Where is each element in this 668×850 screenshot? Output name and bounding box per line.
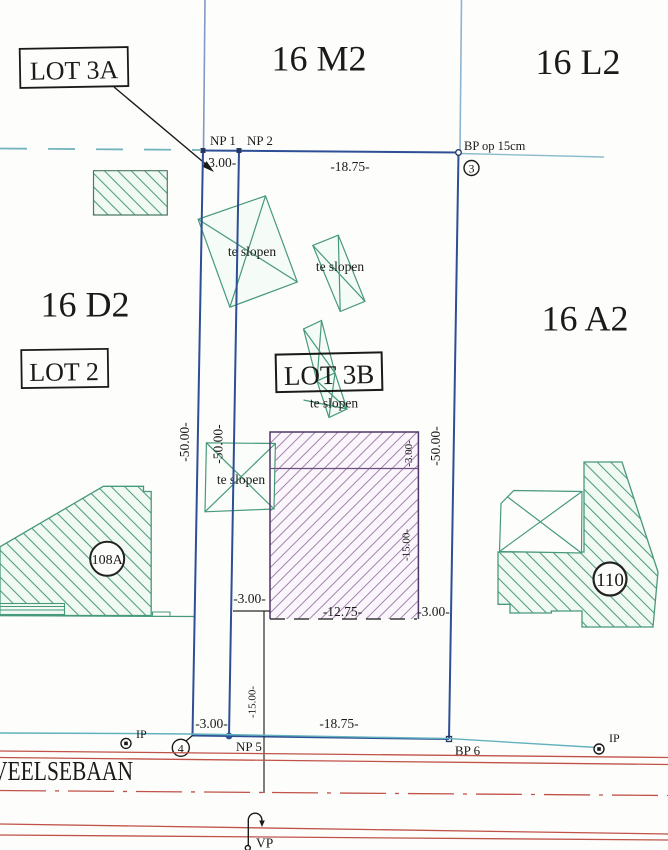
svg-text:-3.00-: -3.00- (233, 591, 266, 606)
svg-text:-3.00-: -3.00- (403, 440, 415, 467)
svg-text:VP: VP (256, 836, 273, 850)
svg-text:te slopen: te slopen (310, 396, 359, 411)
svg-text:-12.75-: -12.75- (323, 604, 363, 619)
svg-text:-18.75-: -18.75- (330, 159, 370, 174)
svg-text:te slopen: te slopen (217, 472, 266, 487)
svg-text:NP 2: NP 2 (247, 133, 273, 148)
svg-text:te slopen: te slopen (228, 244, 277, 259)
svg-text:-15.00-: -15.00- (247, 686, 259, 718)
svg-text:108A: 108A (92, 553, 124, 568)
svg-text:IP: IP (609, 731, 620, 745)
svg-text:-18.75-: -18.75- (319, 716, 359, 731)
svg-text:16 M2: 16 M2 (271, 39, 366, 79)
svg-text:BP op 15cm: BP op 15cm (464, 139, 526, 153)
svg-text:-3.00-: -3.00- (417, 604, 450, 619)
svg-text:110: 110 (596, 570, 624, 591)
svg-text:-3.00-: -3.00- (204, 155, 237, 170)
svg-text:-50.00-: -50.00- (211, 424, 226, 464)
svg-text:te slopen: te slopen (316, 259, 365, 274)
svg-text:16 L2: 16 L2 (536, 42, 621, 82)
svg-text:16 A2: 16 A2 (541, 299, 628, 339)
svg-text:-15.00-: -15.00- (401, 529, 413, 561)
svg-text:3: 3 (469, 162, 475, 176)
svg-text:NP 1: NP 1 (210, 133, 236, 148)
svg-text:NP 5: NP 5 (236, 739, 262, 754)
svg-text:-50.00-: -50.00- (428, 426, 443, 466)
svg-text:VEELSEBAAN: VEELSEBAAN (0, 756, 133, 786)
svg-text:16 D2: 16 D2 (41, 285, 130, 325)
svg-text:LOT 2: LOT 2 (29, 357, 99, 387)
svg-text:LOT 3A: LOT 3A (30, 55, 119, 86)
svg-text:IP: IP (136, 727, 147, 741)
svg-text:-50.00-: -50.00- (177, 422, 192, 462)
svg-text:-3.00-: -3.00- (195, 716, 228, 731)
svg-text:LOT 3B: LOT 3B (284, 359, 375, 391)
